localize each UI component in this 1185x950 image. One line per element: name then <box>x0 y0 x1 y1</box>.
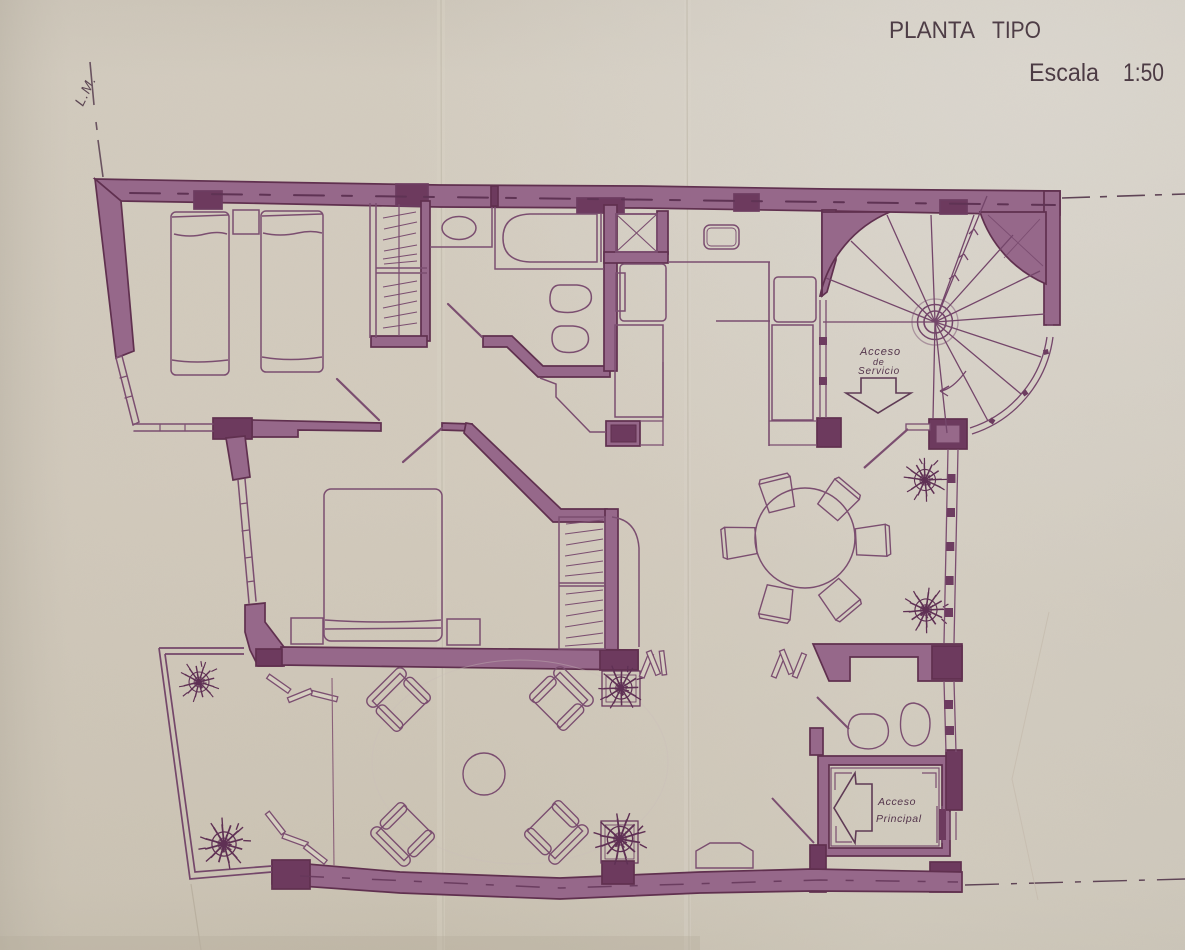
svg-text:Principal: Principal <box>876 813 922 825</box>
svg-text:Acceso: Acceso <box>877 796 916 808</box>
svg-text:TIPO: TIPO <box>992 17 1041 44</box>
svg-text:Escala: Escala <box>1029 59 1099 87</box>
svg-text:1:50: 1:50 <box>1123 59 1164 87</box>
svg-text:Servicio: Servicio <box>858 366 900 377</box>
svg-text:PLANTA: PLANTA <box>889 17 975 44</box>
